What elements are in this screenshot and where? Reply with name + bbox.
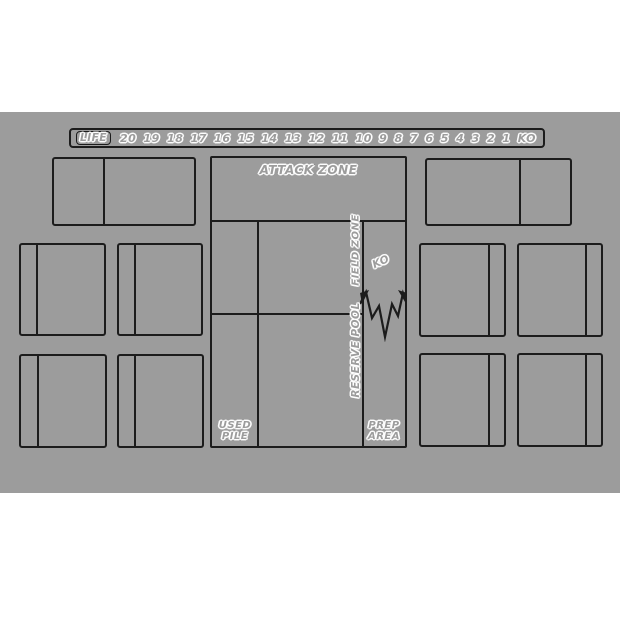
card-divider-line bbox=[134, 245, 136, 334]
life-value[interactable]: 10 bbox=[356, 133, 372, 144]
prep-area-label: PREP AREA bbox=[363, 420, 405, 442]
life-value[interactable]: 14 bbox=[261, 133, 277, 144]
card-divider-line bbox=[488, 355, 490, 445]
prep-area-label-line2: AREA bbox=[363, 431, 405, 442]
life-value[interactable]: 20 bbox=[120, 133, 136, 144]
card-divider-line bbox=[103, 159, 105, 224]
life-value[interactable]: 16 bbox=[214, 133, 230, 144]
attack-zone-border-line bbox=[212, 220, 405, 222]
card-divider-line bbox=[36, 245, 38, 334]
field-zone-label: FIELD ZONE bbox=[351, 214, 362, 286]
card-slot-bottom-left-2[interactable] bbox=[117, 354, 204, 448]
used-pile-column-line bbox=[257, 220, 259, 446]
playmat-image: LIFE 2019181716151413121110987654321KO bbox=[0, 0, 620, 620]
life-value[interactable]: 13 bbox=[285, 133, 301, 144]
card-divider-line bbox=[585, 245, 587, 335]
card-slot-mid-right-1[interactable] bbox=[419, 243, 506, 337]
life-value[interactable]: 7 bbox=[410, 133, 418, 144]
life-label: LIFE bbox=[76, 131, 111, 145]
life-value[interactable]: 12 bbox=[308, 133, 324, 144]
attack-zone-label: ATTACK ZONE bbox=[212, 163, 405, 177]
life-value[interactable]: 5 bbox=[441, 133, 449, 144]
card-slot-bottom-right-1[interactable] bbox=[419, 353, 506, 447]
life-value[interactable]: 9 bbox=[379, 133, 387, 144]
life-value[interactable]: 18 bbox=[167, 133, 183, 144]
card-divider-line bbox=[585, 355, 587, 445]
center-play-zone: ATTACK ZONE FIELD ZONE RESERVE POOL KO U… bbox=[210, 156, 407, 448]
card-slot-mid-left-1[interactable] bbox=[19, 243, 106, 336]
card-slot-bottom-left-1[interactable] bbox=[19, 354, 107, 448]
card-slot-top-left[interactable] bbox=[52, 157, 196, 226]
card-slot-top-right[interactable] bbox=[425, 158, 572, 226]
used-pile-label-line2: PILE bbox=[212, 431, 258, 442]
life-value[interactable]: 6 bbox=[425, 133, 433, 144]
ko-zone-label: KO bbox=[371, 253, 392, 271]
life-value[interactable]: KO bbox=[518, 133, 536, 144]
card-divider-line bbox=[134, 356, 136, 446]
life-value[interactable]: 2 bbox=[487, 133, 495, 144]
prep-area-label-line1: PREP bbox=[363, 420, 405, 431]
life-value[interactable]: 19 bbox=[144, 133, 160, 144]
card-slot-mid-right-2[interactable] bbox=[517, 243, 603, 337]
field-reserve-divider-line bbox=[212, 313, 364, 315]
playmat: LIFE 2019181716151413121110987654321KO bbox=[0, 112, 620, 493]
ko-burst-icon bbox=[360, 288, 407, 342]
life-value[interactable]: 4 bbox=[456, 133, 464, 144]
card-divider-line bbox=[37, 356, 39, 446]
life-values: 2019181716151413121110987654321KO bbox=[120, 133, 536, 144]
life-track[interactable]: LIFE 2019181716151413121110987654321KO bbox=[69, 128, 545, 148]
life-value[interactable]: 1 bbox=[502, 133, 510, 144]
card-divider-line bbox=[519, 160, 521, 224]
life-value[interactable]: 17 bbox=[191, 133, 207, 144]
life-value[interactable]: 8 bbox=[395, 133, 403, 144]
used-pile-label-line1: USED bbox=[212, 420, 258, 431]
life-value[interactable]: 11 bbox=[332, 133, 348, 144]
life-value[interactable]: 15 bbox=[238, 133, 254, 144]
card-divider-line bbox=[488, 245, 490, 335]
card-slot-bottom-right-2[interactable] bbox=[517, 353, 603, 447]
used-pile-label: USED PILE bbox=[212, 420, 258, 442]
card-slot-mid-left-2[interactable] bbox=[117, 243, 203, 336]
life-value[interactable]: 3 bbox=[472, 133, 480, 144]
